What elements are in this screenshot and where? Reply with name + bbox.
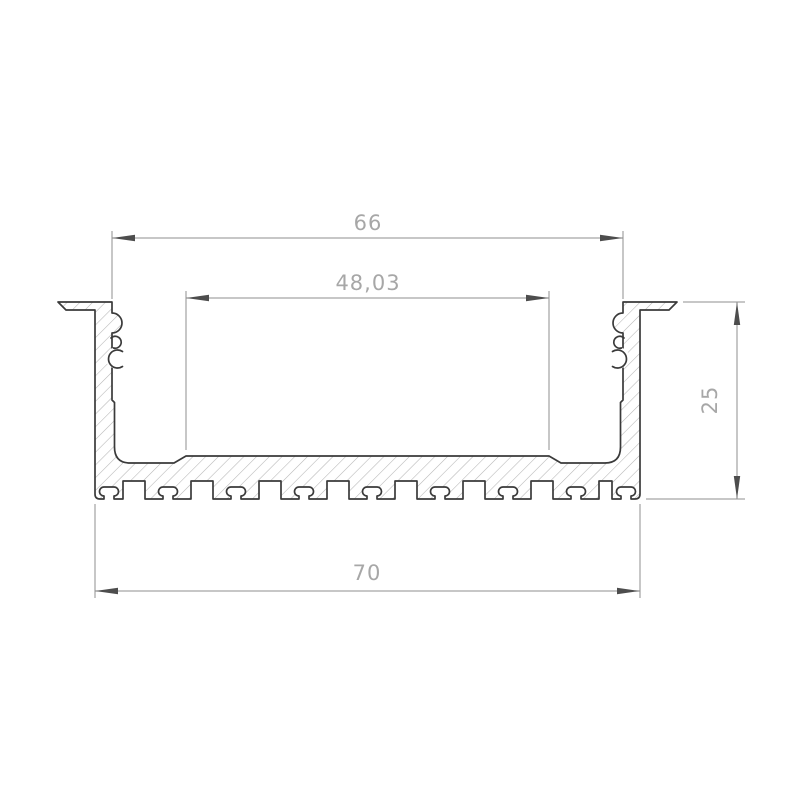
profile-cross-section-drawing: 66 48,03 70 25 (0, 0, 797, 800)
dimension-66-label: 66 (354, 211, 383, 235)
dimension-70-label: 70 (353, 561, 382, 585)
drawing-canvas: 66 48,03 70 25 (0, 0, 797, 800)
drawing-background (0, 0, 797, 800)
dimension-48-03-label: 48,03 (335, 271, 400, 295)
dimension-25-label: 25 (698, 386, 722, 415)
